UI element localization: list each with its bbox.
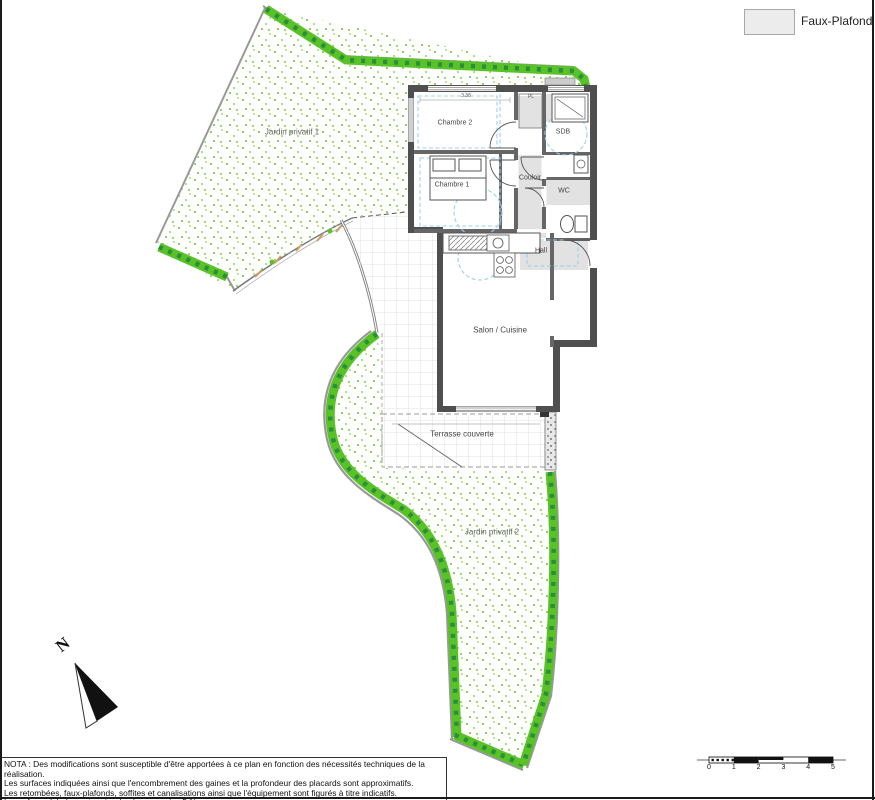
scale-tick-1: 1 [732,764,736,771]
scale-tick-4: 4 [806,764,810,771]
faux-plafond-legend-swatch [744,9,795,35]
garden-2-label: Jardin privatif 2 [465,528,519,537]
garden-1-label: Jardin privatif 1 [265,128,319,137]
placard-label: PL [528,94,534,100]
sheet-border-bottom [0,797,875,799]
sheet-border-right [872,0,874,800]
faux-plafond-legend-label: Faux-Plafond [801,14,872,28]
floor-plan-sheet: Jardin privatif 1 Jardin privatif 2 Cham… [0,0,875,800]
sheet-border-left [0,0,2,800]
scale-tick-5: 5 [831,764,835,771]
stove-icon [494,253,515,277]
scale-tick-0: 0 [707,764,711,771]
bed [430,156,486,200]
scale-bar [697,757,846,763]
duct-box [545,78,575,85]
room-label-terrasse: Terrasse couverte [430,430,494,439]
nota-line-1: NOTA : Des modifications sont susceptibl… [4,760,442,779]
room-label-salon-cuisine: Salon / Cuisine [473,326,527,335]
bathtub [552,94,588,122]
room-label-hall: Hall [535,248,547,255]
terrace-stone-wall [545,412,556,470]
north-arrow-icon [75,663,118,728]
scale-tick-2: 2 [757,764,761,771]
room-label-couloir: Couloir [519,175,541,182]
room-label-chambre1: Chambre 1 [435,182,470,189]
terrace-area [382,408,556,470]
room-label-sdb: SDB [556,129,570,136]
room-label-wc: WC [558,188,570,195]
washbasin [574,155,588,173]
dimension-label: 3.38 [461,93,471,99]
nota-block: NOTA : Des modifications sont susceptibl… [0,757,447,800]
room-label-chambre2: Chambre 2 [438,120,473,127]
scale-tick-3: 3 [781,764,785,771]
